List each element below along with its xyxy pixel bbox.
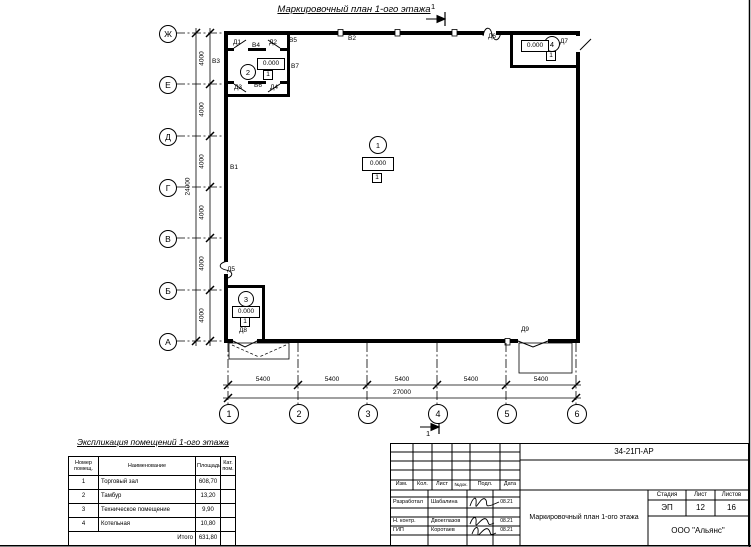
mark-v4: В4	[252, 43, 260, 50]
col-header-num: Номер помещ.	[69, 457, 99, 476]
stage-label: Стадия	[648, 490, 686, 500]
dim-4000: 4000	[200, 149, 209, 175]
table-row: 1 Торговый зал 608,70	[69, 476, 236, 490]
section-mark-top: 1	[431, 3, 435, 11]
mark-d2: Д2	[269, 40, 277, 47]
axis-col-2: 2	[289, 404, 309, 424]
dim-4000: 4000	[200, 200, 209, 226]
sign-date: 08.21	[493, 526, 520, 535]
sign-date: 08.21	[493, 517, 520, 526]
mark-d4: Д4	[270, 85, 278, 92]
sign-role: Н. контр.	[391, 517, 430, 526]
mark-d8: Д8	[239, 328, 247, 335]
total-area: 631,80	[196, 532, 221, 546]
room-3-number: 3	[238, 291, 254, 307]
axis-row-d: Д	[159, 128, 177, 146]
axis-col-4: 4	[428, 404, 448, 424]
dim-5400: 5400	[248, 377, 278, 384]
table-row: 2 Тамбур 13,20	[69, 490, 236, 504]
room-2-elevation: 0.000	[257, 58, 285, 70]
table-header-row: Номер помещ. Наименование Площадь Кат. п…	[69, 457, 236, 476]
sheets-value: 16	[715, 500, 748, 516]
dim-4000: 4000	[200, 303, 209, 329]
page-title: Маркировочный план 1-ого этажа	[254, 5, 454, 15]
table-row: 4 Котельная 10,80	[69, 518, 236, 532]
explication-title: Экспликация помещений 1-ого этажа	[70, 438, 236, 447]
stage-value: ЭП	[648, 500, 686, 516]
rev-header-podp: Подл.	[470, 480, 500, 490]
dim-5400: 5400	[387, 377, 417, 384]
explication-table: Номер помещ. Наименование Площадь Кат. п…	[68, 456, 236, 546]
dim-5400: 5400	[526, 377, 556, 384]
table-row: 3 Техническое помещение 9,90	[69, 504, 236, 518]
room-2-number: 2	[240, 64, 256, 80]
axis-row-v: В	[159, 230, 177, 248]
room-1-floor-type: 1	[372, 173, 382, 183]
room-1-number: 1	[369, 136, 387, 154]
dim-5400: 5400	[456, 377, 486, 384]
doc-code: 34-21П-АР	[520, 443, 748, 460]
axis-col-3: 3	[358, 404, 378, 424]
sign-name: Коротаев	[429, 526, 469, 535]
sheets-label: Листов	[715, 490, 748, 500]
mark-v5: В5	[289, 38, 297, 45]
drawing-sheet: Маркировочный план 1-ого этажа 1 1 Ж Е Д…	[0, 0, 751, 547]
sheet-label: Лист	[686, 490, 715, 500]
axis-col-5: 5	[497, 404, 517, 424]
col-header-name: Наименование	[99, 457, 196, 476]
mark-d5: Д5	[227, 267, 235, 274]
room-4-floor-type: 1	[546, 51, 556, 61]
sign-role: Разработал	[391, 497, 430, 508]
mark-v3: В3	[212, 59, 220, 66]
rev-header-ndok: №док.	[452, 480, 470, 490]
col-header-cat: Кат. пом.	[221, 457, 236, 476]
axis-row-g: Г	[159, 179, 177, 197]
room-1-elevation: 0.000	[362, 157, 394, 171]
rev-header-list: Лист	[432, 480, 452, 490]
mark-v6: В6	[254, 83, 262, 90]
dim-4000: 4000	[200, 97, 209, 123]
room-3-floor-type: 1	[240, 317, 250, 327]
mark-v2: В2	[348, 36, 356, 43]
sign-role: ГИП	[391, 526, 430, 535]
mark-d1: Д1	[233, 40, 241, 47]
mark-v7: В7	[291, 64, 299, 71]
axis-col-1: 1	[219, 404, 239, 424]
organization: ООО "Альянс"	[648, 516, 748, 545]
axis-col-6: 6	[567, 404, 587, 424]
axis-row-b: Б	[159, 282, 177, 300]
rev-header-data: Дата	[500, 480, 520, 490]
dim-24000: 24000	[186, 172, 195, 202]
mark-v1: В1	[230, 165, 238, 172]
dim-27000: 27000	[382, 390, 422, 397]
dim-4000: 4000	[200, 46, 209, 72]
titleblock: 34-21П-АР Изм. Кол. Лист №док. Подл. Дат…	[390, 443, 749, 546]
mark-d9: Д9	[521, 327, 529, 334]
axis-row-e: Е	[159, 76, 177, 94]
sign-name: Двоеглазов	[429, 517, 469, 526]
table-total-row: Итого 631,80	[69, 532, 236, 546]
mark-d6: Д6	[488, 34, 496, 41]
room-4-elevation: 0.000	[521, 40, 549, 52]
section-arrow-icon	[420, 12, 445, 434]
total-label: Итого	[69, 532, 196, 546]
rev-header-kol: Кол.	[413, 480, 432, 490]
sheet-value: 12	[686, 500, 715, 516]
dim-5400: 5400	[317, 377, 347, 384]
section-mark-bottom: 1	[426, 430, 430, 438]
sign-date: 08.21	[493, 497, 520, 508]
col-header-area: Площадь	[196, 457, 221, 476]
mark-d7: Д7	[560, 39, 568, 46]
rev-header-izm: Изм.	[390, 480, 413, 490]
axis-row-a: А	[159, 333, 177, 351]
dim-4000: 4000	[200, 251, 209, 277]
drawing-name: Маркировочный план 1-ого этажа	[520, 490, 648, 545]
axis-row-zh: Ж	[159, 25, 177, 43]
sign-name: Шабалина	[429, 497, 469, 508]
room-2-floor-type: 1	[263, 70, 273, 80]
mark-d3: Д3	[234, 85, 242, 92]
